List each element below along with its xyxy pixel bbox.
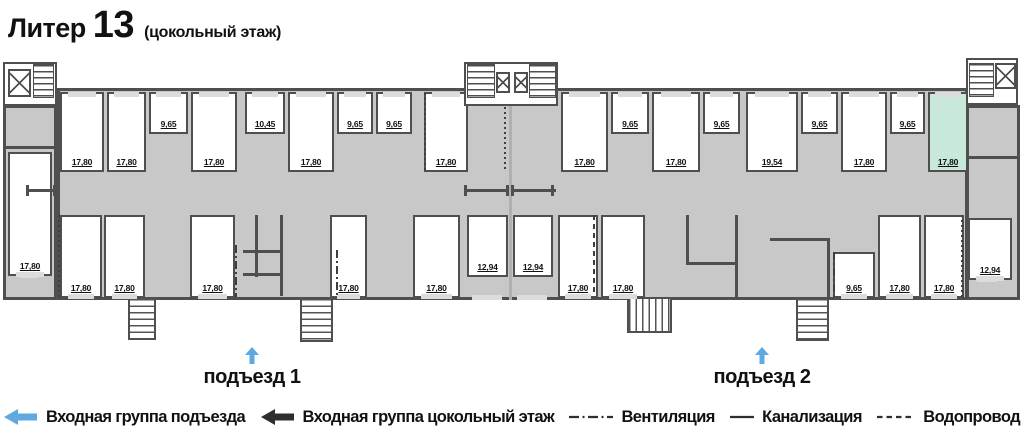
room-area-label: 17,80 [574,157,594,167]
room-area-label: 9,65 [846,283,862,293]
room[interactable]: 12,94 [513,215,553,277]
floor-plan-canvas: 17,8017,809,6517,8010,4517,809,659,6517,… [0,0,1024,438]
legend-item-line-solid: Канализация [730,408,862,427]
window-gap [421,294,451,299]
external-stair-icon [627,299,672,333]
room-area-label: 17,80 [116,157,136,167]
room[interactable]: 17,80 [652,92,700,172]
partition-wall [255,215,258,277]
window-gap [199,92,228,97]
partition-wall [28,189,56,192]
window-gap [432,92,460,97]
room[interactable]: 17,80 [561,92,608,172]
room[interactable]: 17,80 [60,215,102,298]
entrance-arrow-black-icon [261,408,295,426]
partition-wall [735,215,738,298]
legend-item-arrow-blue: Входная группа подъезда [4,408,245,427]
window-gap [755,92,789,97]
entrance-up-arrow-icon [245,347,259,364]
partition-wall [466,189,509,192]
legend-label: Водопровод [923,408,1020,427]
utility-line [961,215,963,297]
window-gap [198,294,227,299]
room-area-label: 19,54 [762,157,782,167]
room[interactable]: 17,80 [841,92,887,172]
window-gap [569,92,599,97]
room[interactable]: 9,65 [149,92,188,134]
room-area-label: 17,80 [20,261,40,271]
window-gap [296,92,325,97]
window-gap [565,294,590,299]
legend-label: Входная группа подъезда [46,408,245,427]
window-gap [609,294,637,299]
partition-wall [686,215,689,265]
room-area-label: 12,94 [523,262,543,272]
room[interactable]: 9,65 [376,92,412,134]
room[interactable]: 17,80 [424,92,468,172]
elevator-shaft-icon [8,69,31,97]
partition-wall [827,238,830,298]
room-area-label: 17,80 [338,283,358,293]
room-area-label: 9,65 [161,119,177,129]
window-gap [252,92,277,97]
ventilation-line [833,252,835,298]
staircase-icon [33,64,54,98]
window-gap [344,92,366,97]
door-gap [517,295,547,300]
window-gap [935,92,960,97]
partition-wall [243,250,283,253]
room-area-label: 17,80 [613,283,633,293]
elevator-shaft-icon [995,63,1016,89]
legend-label: Вентиляция [621,408,714,427]
room[interactable]: 19,54 [746,92,798,172]
room-area-label: 17,80 [426,283,446,293]
door-gap [977,277,997,282]
room-area-label: 9,65 [900,119,916,129]
room[interactable]: 17,80 [924,215,964,298]
partition-wall [511,185,514,196]
room-area-label: 12,94 [980,265,1000,275]
room[interactable]: 9,65 [801,92,838,134]
entrance-up-arrow-icon [755,347,769,364]
room[interactable]: 9,65 [611,92,649,134]
partition-wall [506,185,509,196]
window-gap [886,294,913,299]
staircase-icon [467,64,495,98]
room-area-label: 9,65 [812,119,828,129]
window-gap [710,92,733,97]
elevator-shaft-icon [496,72,510,93]
window-gap [849,92,878,97]
utility-line [58,215,60,297]
room-area-label: 17,80 [436,157,456,167]
room-area-label: 17,80 [114,283,134,293]
room-area-label: 17,80 [204,157,224,167]
window-gap [618,92,642,97]
room[interactable]: 12,94 [467,215,508,277]
room-area-label: 17,80 [934,283,954,293]
door-gap [472,295,502,300]
window-gap [897,92,919,97]
legend-item-line-dashdot: Вентиляция [569,408,714,427]
window-gap [68,294,95,299]
room-area-label: 17,80 [301,157,321,167]
legend-item-line-dashed: Водопровод [877,408,1020,427]
room[interactable]: 9,65 [890,92,925,134]
utility-line [424,93,426,171]
room[interactable]: 9,65 [337,92,373,134]
water-line [593,215,595,296]
room[interactable]: 17,80 [288,92,334,172]
room-area-label: 17,80 [854,157,874,167]
room[interactable]: 17,80 [191,92,237,172]
legend: Входная группа подъездаВходная группа цо… [4,402,1020,432]
window-gap [112,294,138,299]
room[interactable]: 10,45 [245,92,285,134]
staircase-icon [529,64,556,98]
room-area-label: 12,94 [477,262,497,272]
room-area-label: 9,65 [347,119,363,129]
window-gap [68,92,96,97]
room-highlighted[interactable]: 17,80 [928,92,968,172]
room[interactable]: 17,80 [104,215,145,298]
room-area-label: 17,80 [71,283,91,293]
room[interactable]: 17,80 [107,92,146,172]
room[interactable]: 17,80 [8,152,52,276]
room[interactable]: 9,65 [833,252,875,298]
partition-wall [26,185,29,196]
window-gap [156,92,181,97]
room-area-label: 10,45 [255,119,275,129]
legend-label: Входная группа цокольный этаж [303,408,555,427]
staircase-icon [969,63,994,97]
external-stair-icon [796,299,829,341]
entrance-label-group: подъезд 2 [702,347,822,393]
room[interactable]: 12,94 [968,218,1012,280]
external-stair-icon [128,299,156,340]
window-gap [337,294,360,299]
window-gap [808,92,831,97]
partition-wall [243,273,283,276]
line-dashed-icon [877,412,915,422]
legend-label: Канализация [762,408,862,427]
room-area-label: 9,65 [714,119,730,129]
window-gap [114,92,139,97]
floor-plan-page: Литер 13 (цокольный этаж) 17,8017,809,65… [0,0,1024,438]
ventilation-line [235,245,237,297]
room-area-label: 9,65 [622,119,638,129]
entrance-label: подъезд 2 [702,366,822,389]
partition-wall [551,185,554,196]
room-area-label: 17,80 [889,283,909,293]
legend-item-arrow-black: Входная группа цокольный этаж [261,408,555,427]
room-area-label: 17,80 [72,157,92,167]
door-gap [20,273,38,278]
room[interactable]: 17,80 [558,215,598,298]
window-gap [383,92,405,97]
partition-wall [3,146,57,149]
line-solid-icon [730,412,754,422]
elevator-shaft-icon [514,72,528,93]
room-area-label: 17,80 [666,157,686,167]
room[interactable]: 9,65 [703,92,740,134]
entrance-arrow-blue-icon [4,408,38,426]
partition-wall [968,156,1018,159]
room[interactable]: 17,80 [60,92,104,172]
window-gap [661,92,692,97]
external-stair-icon [300,299,333,342]
partition-wall [464,185,467,196]
room-area-label: 17,80 [938,157,958,167]
partition-wall [53,185,56,196]
entrance-label: подъезд 1 [192,366,312,389]
partition-wall [513,189,556,192]
partition-wall [280,215,283,296]
room-area-label: 17,80 [568,283,588,293]
room-area-label: 17,80 [202,283,222,293]
partition-wall [686,262,738,265]
room[interactable]: 17,80 [413,215,460,298]
partition-wall [770,238,830,241]
room[interactable]: 17,80 [601,215,645,298]
room[interactable]: 17,80 [878,215,921,298]
window-gap [841,294,868,299]
room-area-label: 9,65 [386,119,402,129]
entrance-label-group: подъезд 1 [192,347,312,393]
room[interactable]: 17,80 [190,215,235,298]
window-gap [931,294,956,299]
ventilation-line [336,250,338,297]
line-dashdot-icon [569,412,613,422]
